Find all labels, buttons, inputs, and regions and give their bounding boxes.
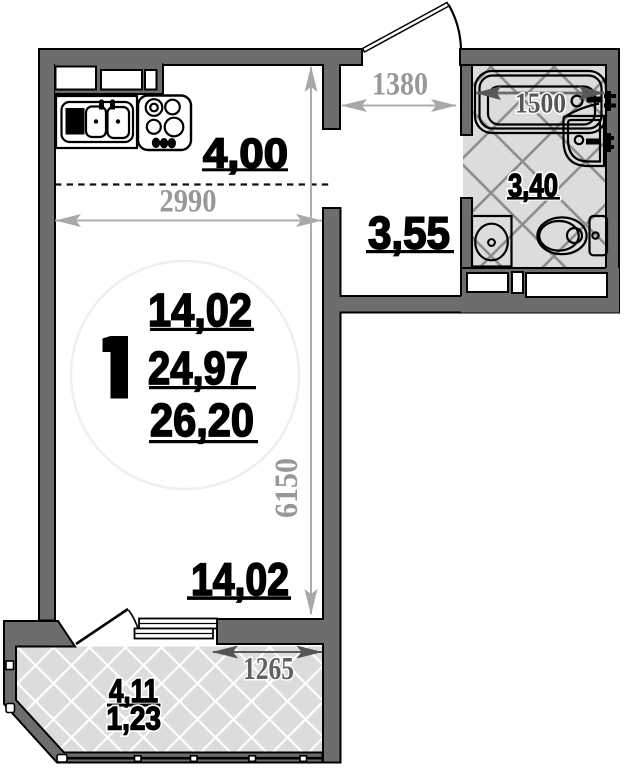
svg-text:1,23: 1,23 [107, 701, 162, 737]
svg-text:1380: 1380 [372, 67, 428, 103]
svg-text:26,20: 26,20 [150, 394, 254, 446]
svg-text:1265: 1265 [243, 650, 294, 686]
svg-text:6150: 6150 [269, 458, 305, 518]
svg-text:2990: 2990 [160, 184, 217, 220]
svg-text:1500: 1500 [515, 88, 566, 120]
